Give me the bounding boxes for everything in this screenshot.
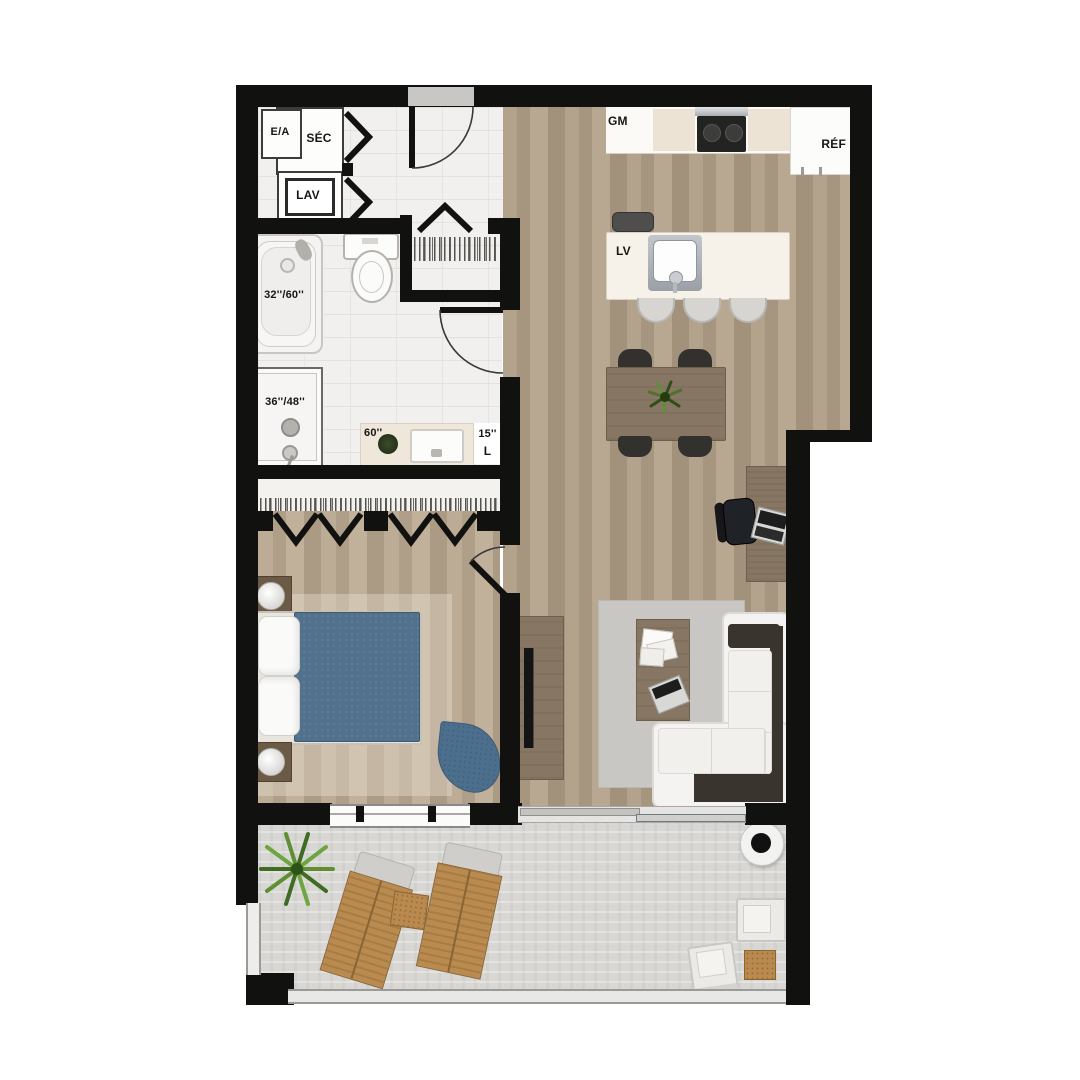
shower-size-label: 36''/48'' — [251, 395, 319, 409]
fridge-label: RÉF — [806, 137, 846, 151]
magazine — [639, 647, 664, 667]
dining-table — [606, 367, 726, 441]
tv — [524, 648, 534, 748]
balcony-side-table — [744, 950, 776, 980]
cooktop-handle — [695, 107, 748, 116]
entry-threshold — [408, 87, 474, 106]
wall-closet-stub — [477, 511, 504, 531]
vanity-size-label: 60'' — [364, 426, 394, 440]
cooktop-burner — [703, 124, 721, 142]
shower — [251, 367, 323, 467]
island-faucet-stem — [673, 282, 677, 293]
bedroom-window — [330, 804, 470, 828]
pantry-label: GM — [608, 114, 648, 128]
nightstand-lamp — [257, 582, 285, 610]
wall-bottom-b — [468, 803, 522, 825]
wall-bathroom-bottom — [236, 465, 520, 479]
bathtub-drain — [280, 258, 295, 273]
vanity-faucet — [431, 449, 442, 457]
wall-closet-stub — [247, 511, 273, 531]
fridge-door-handle — [801, 167, 804, 176]
bbq-grill — [740, 822, 784, 866]
toilet-seat — [359, 261, 384, 293]
wall-entry-closet-bottom — [400, 290, 504, 302]
patio-sliding-door — [518, 806, 746, 823]
bedroom-window-mullion — [428, 806, 436, 822]
entry-closet-hangers — [414, 237, 498, 261]
bedroom-window-glass-line — [330, 813, 470, 815]
wall-bottom-a — [236, 803, 332, 825]
lounger-split — [447, 870, 471, 972]
patio-door-panel — [520, 808, 640, 816]
bedroom-window-mullion — [356, 806, 364, 822]
bathtub-size-label: 32''/60'' — [250, 288, 318, 302]
balcony-chair-seat — [743, 905, 771, 933]
vanity-sink — [410, 429, 464, 463]
wall-laundry-bottom — [236, 218, 406, 234]
dishwasher-label: LV — [616, 244, 646, 258]
bed-pillow — [258, 616, 300, 676]
wall-top — [236, 85, 872, 107]
dining-chair — [618, 436, 652, 457]
dryer-label: SÉC — [298, 131, 340, 145]
wall-right-lower — [786, 430, 810, 1005]
sofa-cushions-horizontal — [658, 728, 766, 774]
wall-left — [236, 85, 258, 905]
floor-plan: E/A SÉC LAV 32''/60'' 36''/48'' 60'' 15'… — [0, 0, 1080, 1080]
toilet-flush-button — [362, 238, 378, 244]
dining-chair — [678, 436, 712, 457]
fridge-door-handle — [819, 167, 822, 176]
linen-size-label: 15'' — [473, 427, 502, 441]
cooktop — [697, 116, 746, 152]
counter-section-right — [748, 109, 790, 151]
bed-duvet — [294, 612, 420, 742]
cooktop-burner — [725, 124, 743, 142]
office-chair — [713, 494, 758, 548]
sofa-back-bottom — [694, 774, 783, 802]
wall-right-upper — [850, 85, 872, 442]
island-bench — [612, 212, 654, 232]
bbq-grill-lid — [751, 833, 771, 853]
balcony-chair — [736, 898, 790, 942]
bed-pillow — [258, 676, 300, 736]
toilet-bowl — [351, 250, 393, 303]
wall-closet-stub — [364, 511, 388, 531]
nightstand-lamp — [257, 748, 285, 776]
bedroom-closet-hangers — [260, 498, 498, 511]
balcony-railing-bottom — [288, 989, 786, 1004]
wall-entry-closet-left — [400, 215, 412, 302]
office-chair-seat — [722, 497, 759, 546]
wall-laundry-stub — [342, 163, 353, 176]
balcony-chair-seat — [696, 948, 727, 978]
washer-label: LAV — [277, 188, 339, 202]
lounger-split — [350, 881, 382, 979]
air-exchanger-label: E/A — [262, 125, 298, 139]
balcony-side-table — [390, 891, 430, 931]
linen-label: L — [473, 444, 502, 458]
shower-drain — [281, 418, 300, 437]
balcony-railing-left — [246, 903, 261, 975]
patio-door-panel — [636, 814, 746, 822]
wall-bottom-c — [745, 803, 810, 825]
wall-divider-a — [500, 230, 520, 310]
balcony-chair — [687, 941, 739, 995]
wall-divider-c — [500, 593, 520, 825]
island-sink — [648, 235, 702, 291]
balcony-post — [246, 973, 294, 1005]
counter-section-left — [653, 109, 695, 151]
